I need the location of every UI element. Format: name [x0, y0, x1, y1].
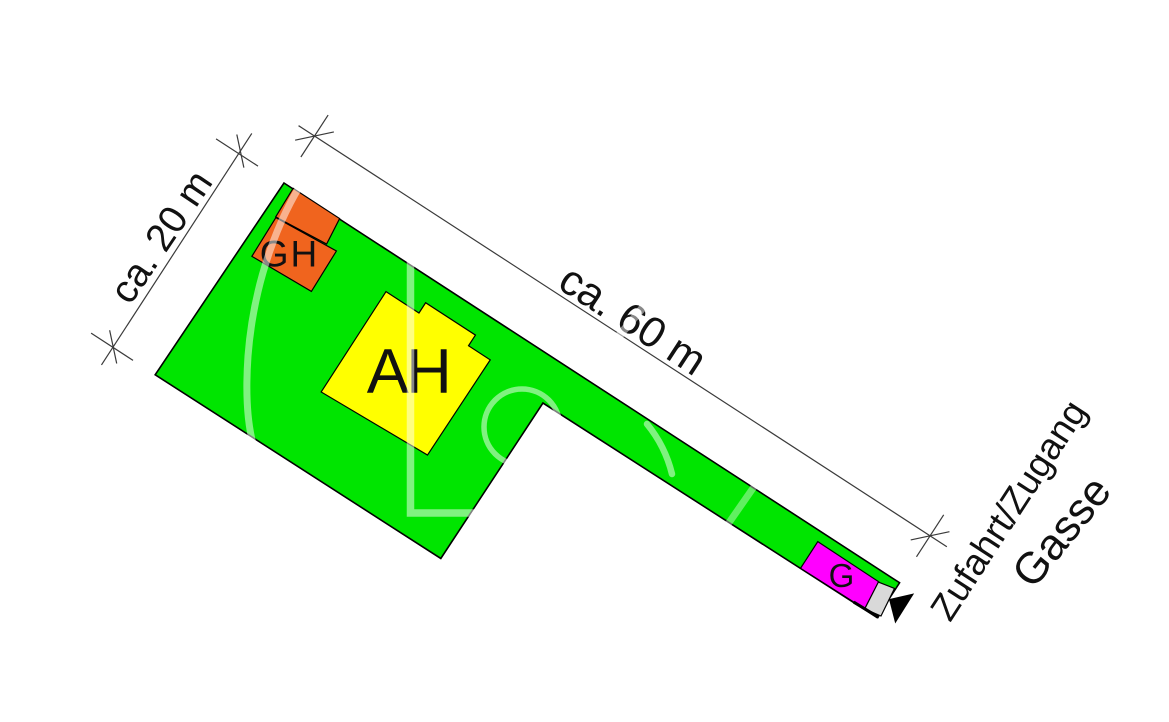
- svg-text:G: G: [829, 557, 855, 594]
